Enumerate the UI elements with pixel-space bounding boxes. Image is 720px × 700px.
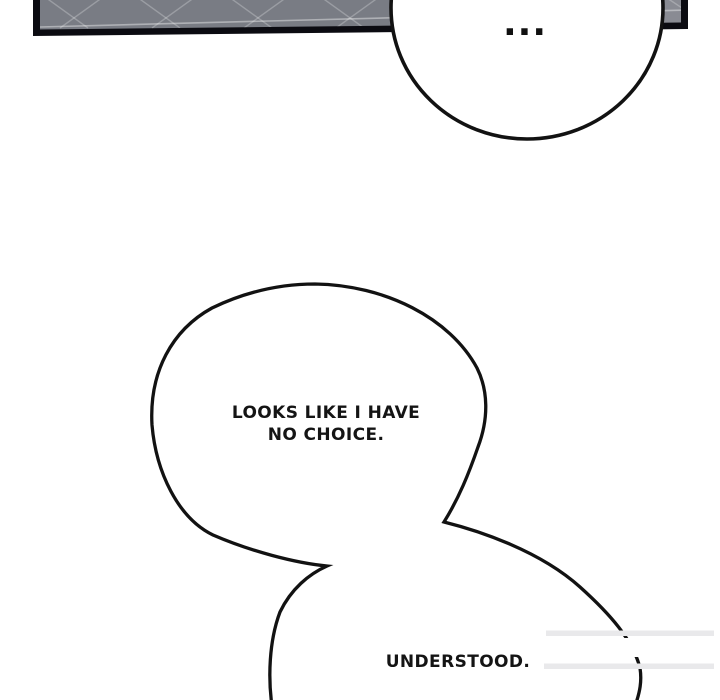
reply-dialogue: UNDERSTOOD. — [366, 650, 550, 674]
erase-streak-top — [546, 631, 714, 637]
erase-patch — [598, 638, 708, 657]
ellipsis-text: ... — [494, 4, 556, 46]
main-dialogue: LOOKS LIKE I HAVE NO CHOICE. — [210, 402, 442, 446]
speech-bubble-chain — [152, 284, 641, 700]
main-dialogue-line-2: NO CHOICE. — [210, 424, 442, 446]
main-dialogue-line-1: LOOKS LIKE I HAVE — [210, 402, 442, 424]
erase-streak-bottom — [544, 664, 714, 670]
comic-artwork — [0, 0, 720, 700]
comic-page: ... LOOKS LIKE I HAVE NO CHOICE. UNDERST… — [0, 0, 720, 700]
